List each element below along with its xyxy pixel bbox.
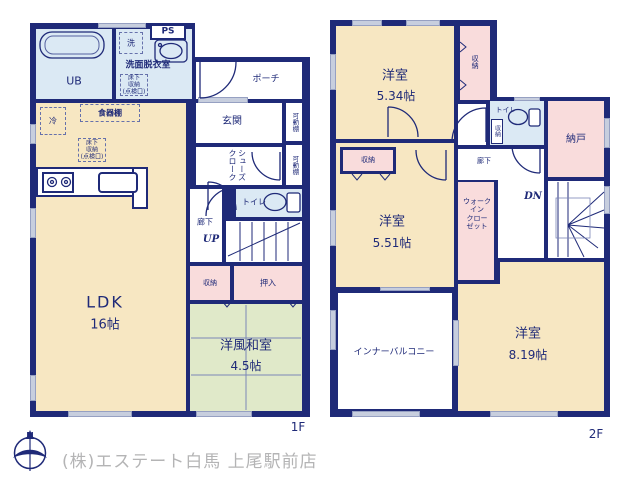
label-inner-balcony: インナーバルコニー [354,348,435,359]
room-819-left [458,284,504,411]
room-japanese [190,304,302,411]
label-closet-551: 収納 [361,156,375,164]
label-nando: 納戸 [566,134,586,146]
label-closet-534: 収納 [471,55,479,69]
label-ldk-size: 16帖 [90,317,120,332]
floorplan-canvas: UB 洗 PS 洗面脱衣室 床下 収納 (点検口) 冷 食器棚 床下 収納 (点… [0,0,640,480]
window [406,20,440,26]
stairs-up-area [226,221,302,262]
window [98,23,146,28]
label-room551-size: 5.51帖 [373,236,412,250]
kitchen-sink [98,172,138,193]
window [30,124,36,144]
compass-north-label: N [26,432,34,443]
room-hallway-2f [458,149,544,180]
label-floor-2f: 2F [589,427,604,441]
label-entrance: 玄関 [222,116,242,128]
label-room819-size: 8.19帖 [509,348,548,362]
label-toilet-storage: 収納 [493,125,500,137]
window [330,210,336,246]
window [604,186,610,214]
label-movable-shelf-1: 可動棚 [290,112,298,132]
room-porch [196,62,302,99]
label-japanese-room-name: 洋風和室 [220,338,272,353]
label-ldk-name: LDK [86,294,124,313]
stairs-down-area [548,181,604,258]
label-hallway-2f: 廊下 [477,157,491,165]
window [352,411,420,417]
window [196,411,252,417]
label-room819-name: 洋室 [515,326,541,341]
label-walk-in-closet: ウォーク イン クロー ゼット [463,198,491,231]
label-room551-name: 洋室 [379,214,405,229]
hall-2f-upper [458,104,486,145]
label-shoes-closet: シューズ クローク [228,149,247,181]
label-ps: PS [161,27,174,38]
window [514,97,540,101]
window [330,310,336,350]
label-underfloor-washroom: 床下 収納 (点検口) [123,74,146,95]
label-stairs-up: UP [203,234,219,246]
entry-door-slider [198,97,248,103]
label-toilet-1f: トイレ [242,197,266,206]
label-movable-shelf-2: 可動棚 [290,155,298,175]
label-storage-1f: 収納 [203,279,217,287]
label-toilet-2f: トイレ [496,106,517,114]
label-washroom: 洗面脱衣室 [125,61,170,72]
label-oshiire: 押入 [260,278,276,287]
window [330,54,336,90]
label-underfloor-ldk: 床下 収納 (点検口) [81,139,104,160]
company-name: (株)エステート白馬 上尾駅前店 [62,447,318,472]
window [30,208,36,238]
label-washer: 洗 [127,38,135,47]
label-room534-size: 5.34帖 [377,89,416,103]
label-room534-name: 洋室 [382,68,408,83]
label-cupboard: 食器棚 [98,108,122,117]
label-porch: ポーチ [252,75,279,86]
stove [42,172,74,193]
window [68,411,132,417]
window [30,375,36,401]
window [352,20,382,26]
window [490,411,558,417]
room-ldk [36,103,186,411]
window [380,287,430,291]
label-hallway-1f: 廊下 [197,217,213,226]
window [604,118,610,148]
label-stairs-down: DN [524,191,542,203]
label-fridge: 冷 [49,116,57,125]
label-floor-1f: 1F [291,420,306,434]
label-ub: UB [66,76,82,89]
window [453,320,459,366]
label-japanese-room-size: 4.5帖 [230,359,261,373]
room-bath-ub [36,29,112,99]
